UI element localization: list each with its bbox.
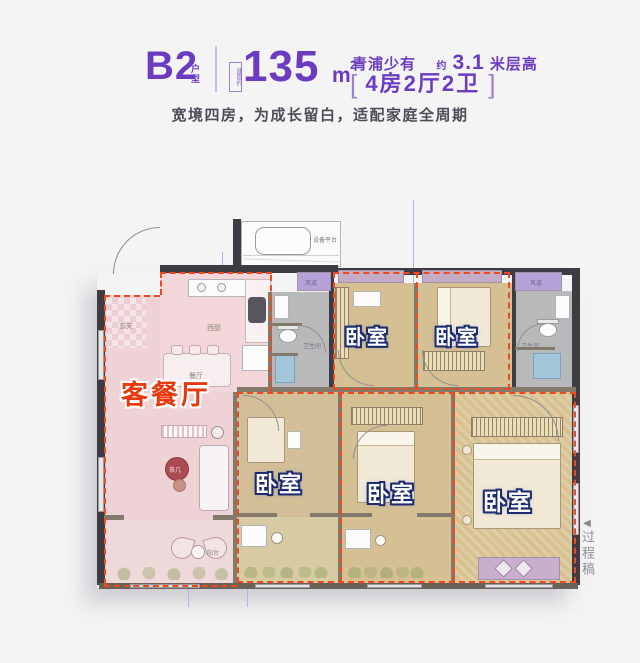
room-label-bedroom: 卧室 bbox=[367, 477, 415, 509]
subtitle: 宽境四房，为成长留白，适配家庭全周期 bbox=[0, 104, 640, 125]
room-label-bedroom: 卧室 bbox=[255, 467, 303, 499]
speaker bbox=[211, 426, 224, 439]
equipment-platform-label: 设备平台 bbox=[313, 235, 337, 244]
room-label-bedroom: 卧室 bbox=[345, 321, 389, 350]
wall-segment bbox=[272, 353, 298, 356]
balcony-table bbox=[191, 545, 205, 559]
watermark: ◀ 过程稿 bbox=[578, 518, 596, 578]
ac-unit bbox=[255, 227, 311, 255]
stove-burner bbox=[197, 283, 206, 292]
door-arc bbox=[113, 227, 160, 274]
layout-spec-text: 4房2厅2卫 bbox=[365, 71, 480, 96]
sofa bbox=[199, 445, 229, 511]
tagline-height-unit: 米层高 bbox=[490, 56, 538, 73]
tea-table-label: 茶几 bbox=[169, 465, 181, 474]
bracket-open: [ bbox=[350, 69, 357, 99]
west-kitchen-label: 西厨 bbox=[207, 323, 221, 333]
stove-burner bbox=[217, 283, 226, 292]
zone-outline bbox=[270, 275, 272, 392]
balcony-label: 阳台 bbox=[207, 548, 219, 557]
floorplan: 设备平台 bbox=[85, 195, 597, 613]
platform-line bbox=[243, 255, 339, 256]
layout-spec: [ 4房2厅2卫 ] bbox=[350, 66, 495, 100]
bathroom-sink bbox=[555, 295, 570, 319]
zone-divider bbox=[453, 392, 455, 583]
shower bbox=[275, 355, 295, 383]
zone-divider bbox=[416, 272, 418, 390]
tv-console bbox=[161, 425, 207, 438]
window bbox=[255, 584, 310, 588]
dining-chair bbox=[171, 345, 183, 355]
zone-outline bbox=[104, 295, 160, 297]
room-label-bedroom: 卧室 bbox=[483, 483, 533, 517]
bathroom-label: 卫生间 bbox=[303, 341, 321, 350]
area-prefix: 建面约 bbox=[229, 62, 242, 92]
room-label-bedroom: 卧室 bbox=[435, 321, 479, 350]
zone-outline bbox=[160, 272, 272, 274]
side-table bbox=[173, 479, 186, 492]
bathroom-sink bbox=[274, 295, 289, 319]
area-number: 135 bbox=[243, 42, 319, 92]
zone-outline bbox=[104, 585, 237, 587]
zone-outline bbox=[160, 272, 162, 295]
entry-label: 玄关 bbox=[119, 321, 133, 331]
shower bbox=[533, 353, 561, 379]
duct-label: 风道 bbox=[530, 278, 542, 287]
wall-segment bbox=[104, 515, 124, 520]
watermark-text: 过程稿 bbox=[578, 530, 597, 578]
bathroom-label: 卫生间 bbox=[521, 341, 539, 350]
fridge bbox=[242, 345, 269, 371]
toilet bbox=[279, 329, 297, 343]
zone-divider bbox=[340, 392, 342, 583]
watermark-arrow-icon: ◀ bbox=[578, 518, 596, 530]
wall-segment bbox=[233, 219, 241, 267]
zone-outline bbox=[104, 295, 106, 585]
plan-code-suffix: 户型 bbox=[191, 64, 202, 84]
window bbox=[367, 584, 422, 588]
header-divider bbox=[215, 46, 217, 92]
duct-label: 风道 bbox=[305, 278, 317, 287]
dining-chair bbox=[189, 345, 201, 355]
plants bbox=[109, 567, 234, 580]
floorplan-poster: B2 户型 建面约 135 m 2 青浦少有 约 3.1 米层高 [ 4房2厅2… bbox=[0, 0, 640, 663]
bracket-close: ] bbox=[488, 69, 495, 99]
dining-chair bbox=[207, 345, 219, 355]
area-unit: m bbox=[332, 64, 351, 88]
wall-segment bbox=[213, 515, 237, 520]
window bbox=[485, 584, 553, 588]
dining-label: 餐厅 bbox=[189, 371, 203, 381]
kitchen-sink bbox=[248, 297, 266, 323]
